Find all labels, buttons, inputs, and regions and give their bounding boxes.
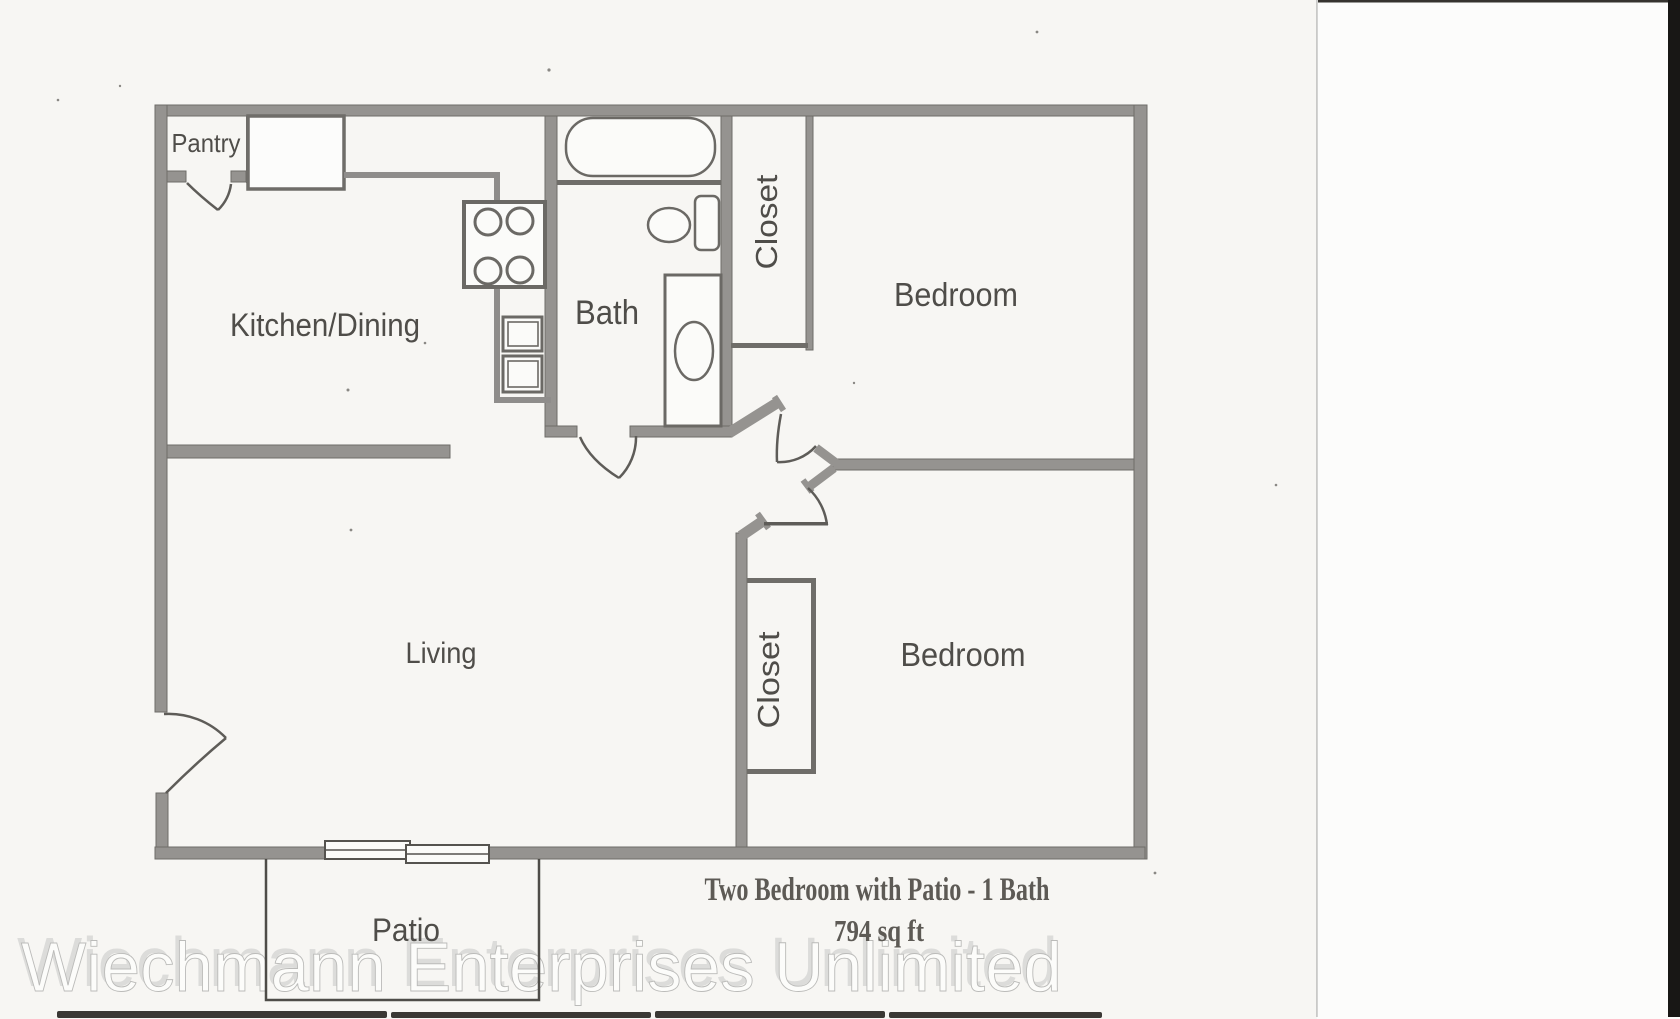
svg-text:Closet: Closet [749,174,784,269]
svg-text:Living: Living [406,637,477,670]
svg-text:Pantry: Pantry [172,128,241,158]
svg-text:Bedroom: Bedroom [894,276,1018,313]
svg-text:Bedroom: Bedroom [901,636,1026,673]
svg-text:Two Bedroom with Patio - 1 Bat: Two Bedroom with Patio - 1 Bath [705,872,1050,908]
svg-text:Closet: Closet [751,631,786,728]
svg-text:Kitchen/Dining: Kitchen/Dining [230,307,420,343]
svg-text:Patio: Patio [372,912,440,948]
svg-text:Bath: Bath [575,294,639,332]
svg-text:794 sq ft: 794 sq ft [834,913,925,948]
